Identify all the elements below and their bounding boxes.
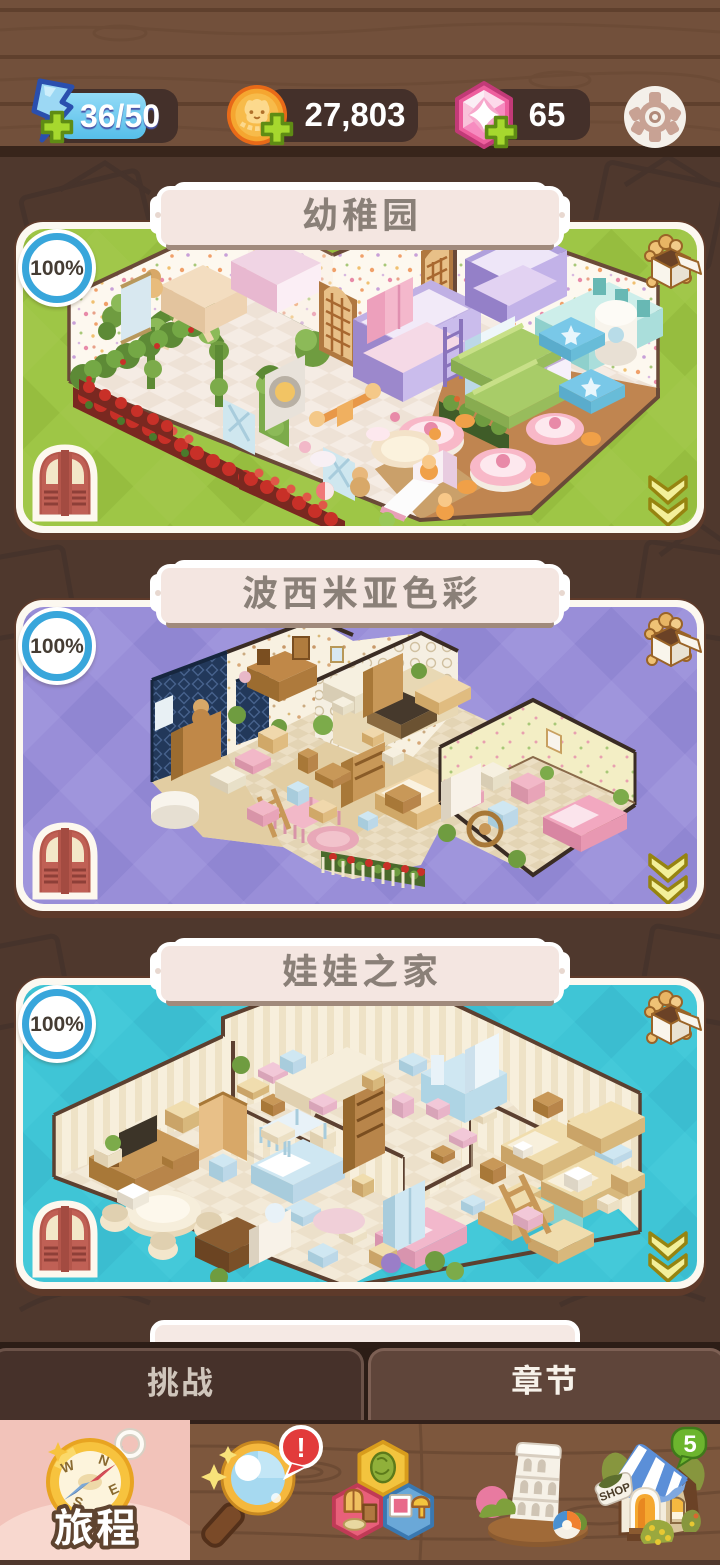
svg-text:!: ! xyxy=(296,1432,305,1463)
svg-text:5: 5 xyxy=(683,1431,696,1458)
